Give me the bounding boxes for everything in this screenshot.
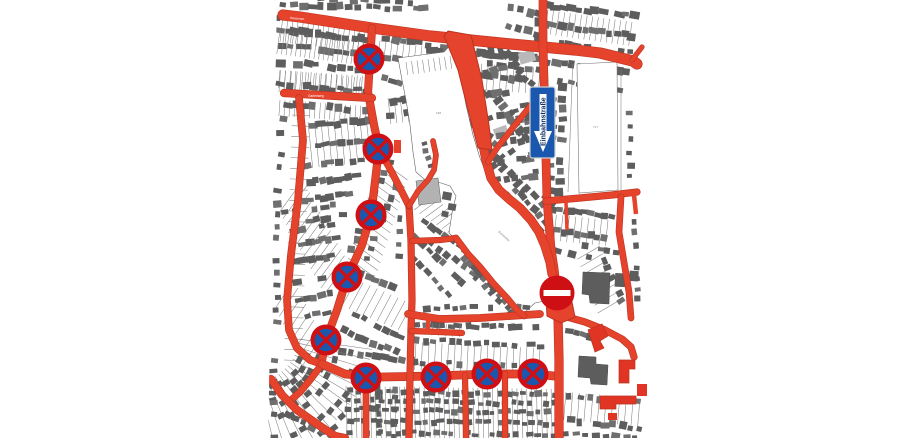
svg-text:Gartenweg: Gartenweg <box>308 94 324 98</box>
svg-text:158: 158 <box>436 111 441 115</box>
svg-text:Einbahnstraße: Einbahnstraße <box>541 97 548 146</box>
svg-text:717: 717 <box>593 125 598 129</box>
